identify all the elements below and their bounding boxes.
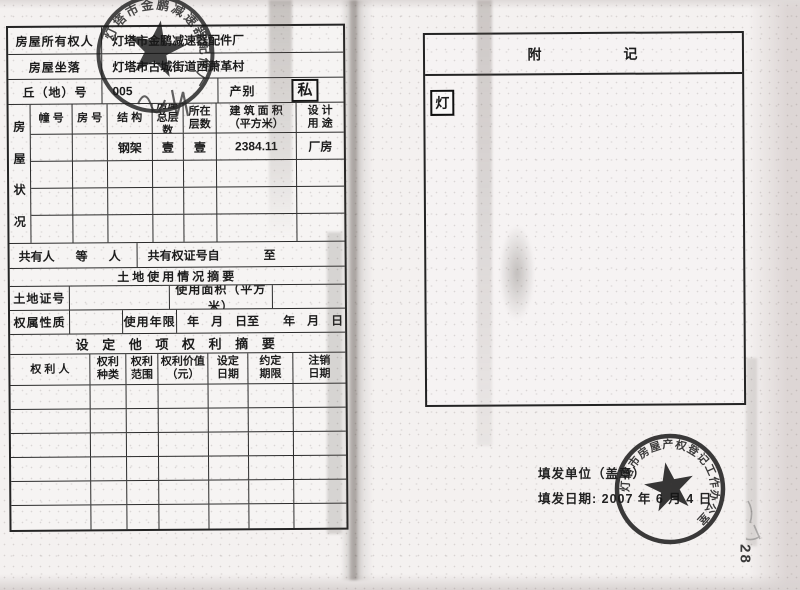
page-fold-shadow-core xyxy=(350,0,357,580)
empty-row xyxy=(31,187,344,216)
owner-value: 灯塔市金鹏减速器配件厂 xyxy=(102,26,343,54)
condition-data-row: 钢架 壹 壹 2384.11 厂房 xyxy=(31,133,344,162)
use-term-value: 年 月 日至 年 月 日 xyxy=(177,309,345,333)
issue-info: 填发单位（盖章） 填发日期: 2007 年 6 月 4 日 xyxy=(538,462,712,512)
empty-row xyxy=(11,408,346,434)
structure-value: 钢架 xyxy=(108,134,153,160)
land-section-title: 土地使用情况摘要 xyxy=(10,267,345,287)
condition-header-row: 幢 号 房 号 结 构 房屋 总层数 所在 层数 建 筑 面 积 （平方米） 设… xyxy=(31,103,344,135)
location-label: 房屋坐落 xyxy=(8,54,102,79)
tenure-row: 权属性质 使用年限 年 月 日至 年 月 日 xyxy=(10,309,345,335)
location-value: 灯塔市古城街道西萧革村 xyxy=(102,53,343,79)
land-cert-row: 土地证号 使用面积（平方米） xyxy=(10,285,345,311)
category-label: 产别 xyxy=(218,78,266,102)
co-owner-row: 共有人 等 人 共有权证号自 至 xyxy=(10,242,345,269)
issue-date-line: 填发日期: 2007 年 6 月 4 日 xyxy=(538,487,712,512)
empty-row xyxy=(31,214,344,243)
notes-box: 附 记 灯 xyxy=(423,31,746,407)
empty-row xyxy=(11,504,346,530)
deng-seal-character: 灯 xyxy=(430,90,454,116)
empty-row xyxy=(11,432,346,458)
margin-page-number: 28 xyxy=(737,540,754,570)
house-condition-vertical-label: 房 屋 状 况 xyxy=(9,105,32,243)
plot-label: 丘（地）号 xyxy=(8,79,102,104)
land-area-label: 使用面积（平方米） xyxy=(170,285,273,309)
scan-edge xyxy=(748,0,800,590)
property-info-table: 房屋所有权人 灯塔市金鹏减速器配件厂 房屋坐落 灯塔市古城街道西萧革村 丘（地）… xyxy=(6,24,349,532)
empty-row xyxy=(11,384,346,410)
land-cert-label: 土地证号 xyxy=(10,287,70,310)
area-value: 2384.11 xyxy=(217,133,297,160)
scanned-property-certificate: 房屋所有权人 灯塔市金鹏减速器配件厂 房屋坐落 灯塔市古城街道西萧革村 丘（地）… xyxy=(0,0,800,590)
floor-value: 壹 xyxy=(184,134,217,160)
owner-label: 房屋所有权人 xyxy=(8,27,102,54)
category-cell: 私 xyxy=(266,78,343,103)
total-floors-value: 壹 xyxy=(153,134,184,160)
plot-row: 丘（地）号 005 产别 私 xyxy=(8,78,343,105)
use-term-label: 使用年限 xyxy=(123,310,177,333)
empty-row xyxy=(11,480,346,506)
use-value: 厂房 xyxy=(297,133,344,159)
category-stamp: 私 xyxy=(291,78,318,101)
plot-value: 005 xyxy=(102,79,218,104)
rights-section-title: 设 定 他 项 权 利 摘 要 xyxy=(10,333,345,355)
co-cert-label: 共有权证号自 xyxy=(148,246,220,264)
empty-row xyxy=(11,456,346,482)
notes-title: 附 记 xyxy=(425,33,742,76)
house-condition-section: 房 屋 状 况 幢 号 房 号 结 构 房屋 总层数 所在 层数 建 筑 面 积… xyxy=(9,103,345,244)
scan-edge xyxy=(0,574,800,590)
location-row: 房屋坐落 灯塔市古城街道西萧革村 xyxy=(8,53,343,80)
owner-row: 房屋所有权人 灯塔市金鹏减速器配件厂 xyxy=(8,26,343,55)
scan-edge xyxy=(0,0,800,9)
issuer-label: 填发单位（盖章） xyxy=(538,462,712,487)
empty-row xyxy=(31,160,344,189)
rights-header-row: 权 利 人 权利 种类 权利 范围 权利价值 （元） 设定 日期 约定 期限 注… xyxy=(10,353,345,386)
co-owner-label: 共有人 xyxy=(19,247,55,264)
tenure-label: 权属性质 xyxy=(10,311,70,334)
